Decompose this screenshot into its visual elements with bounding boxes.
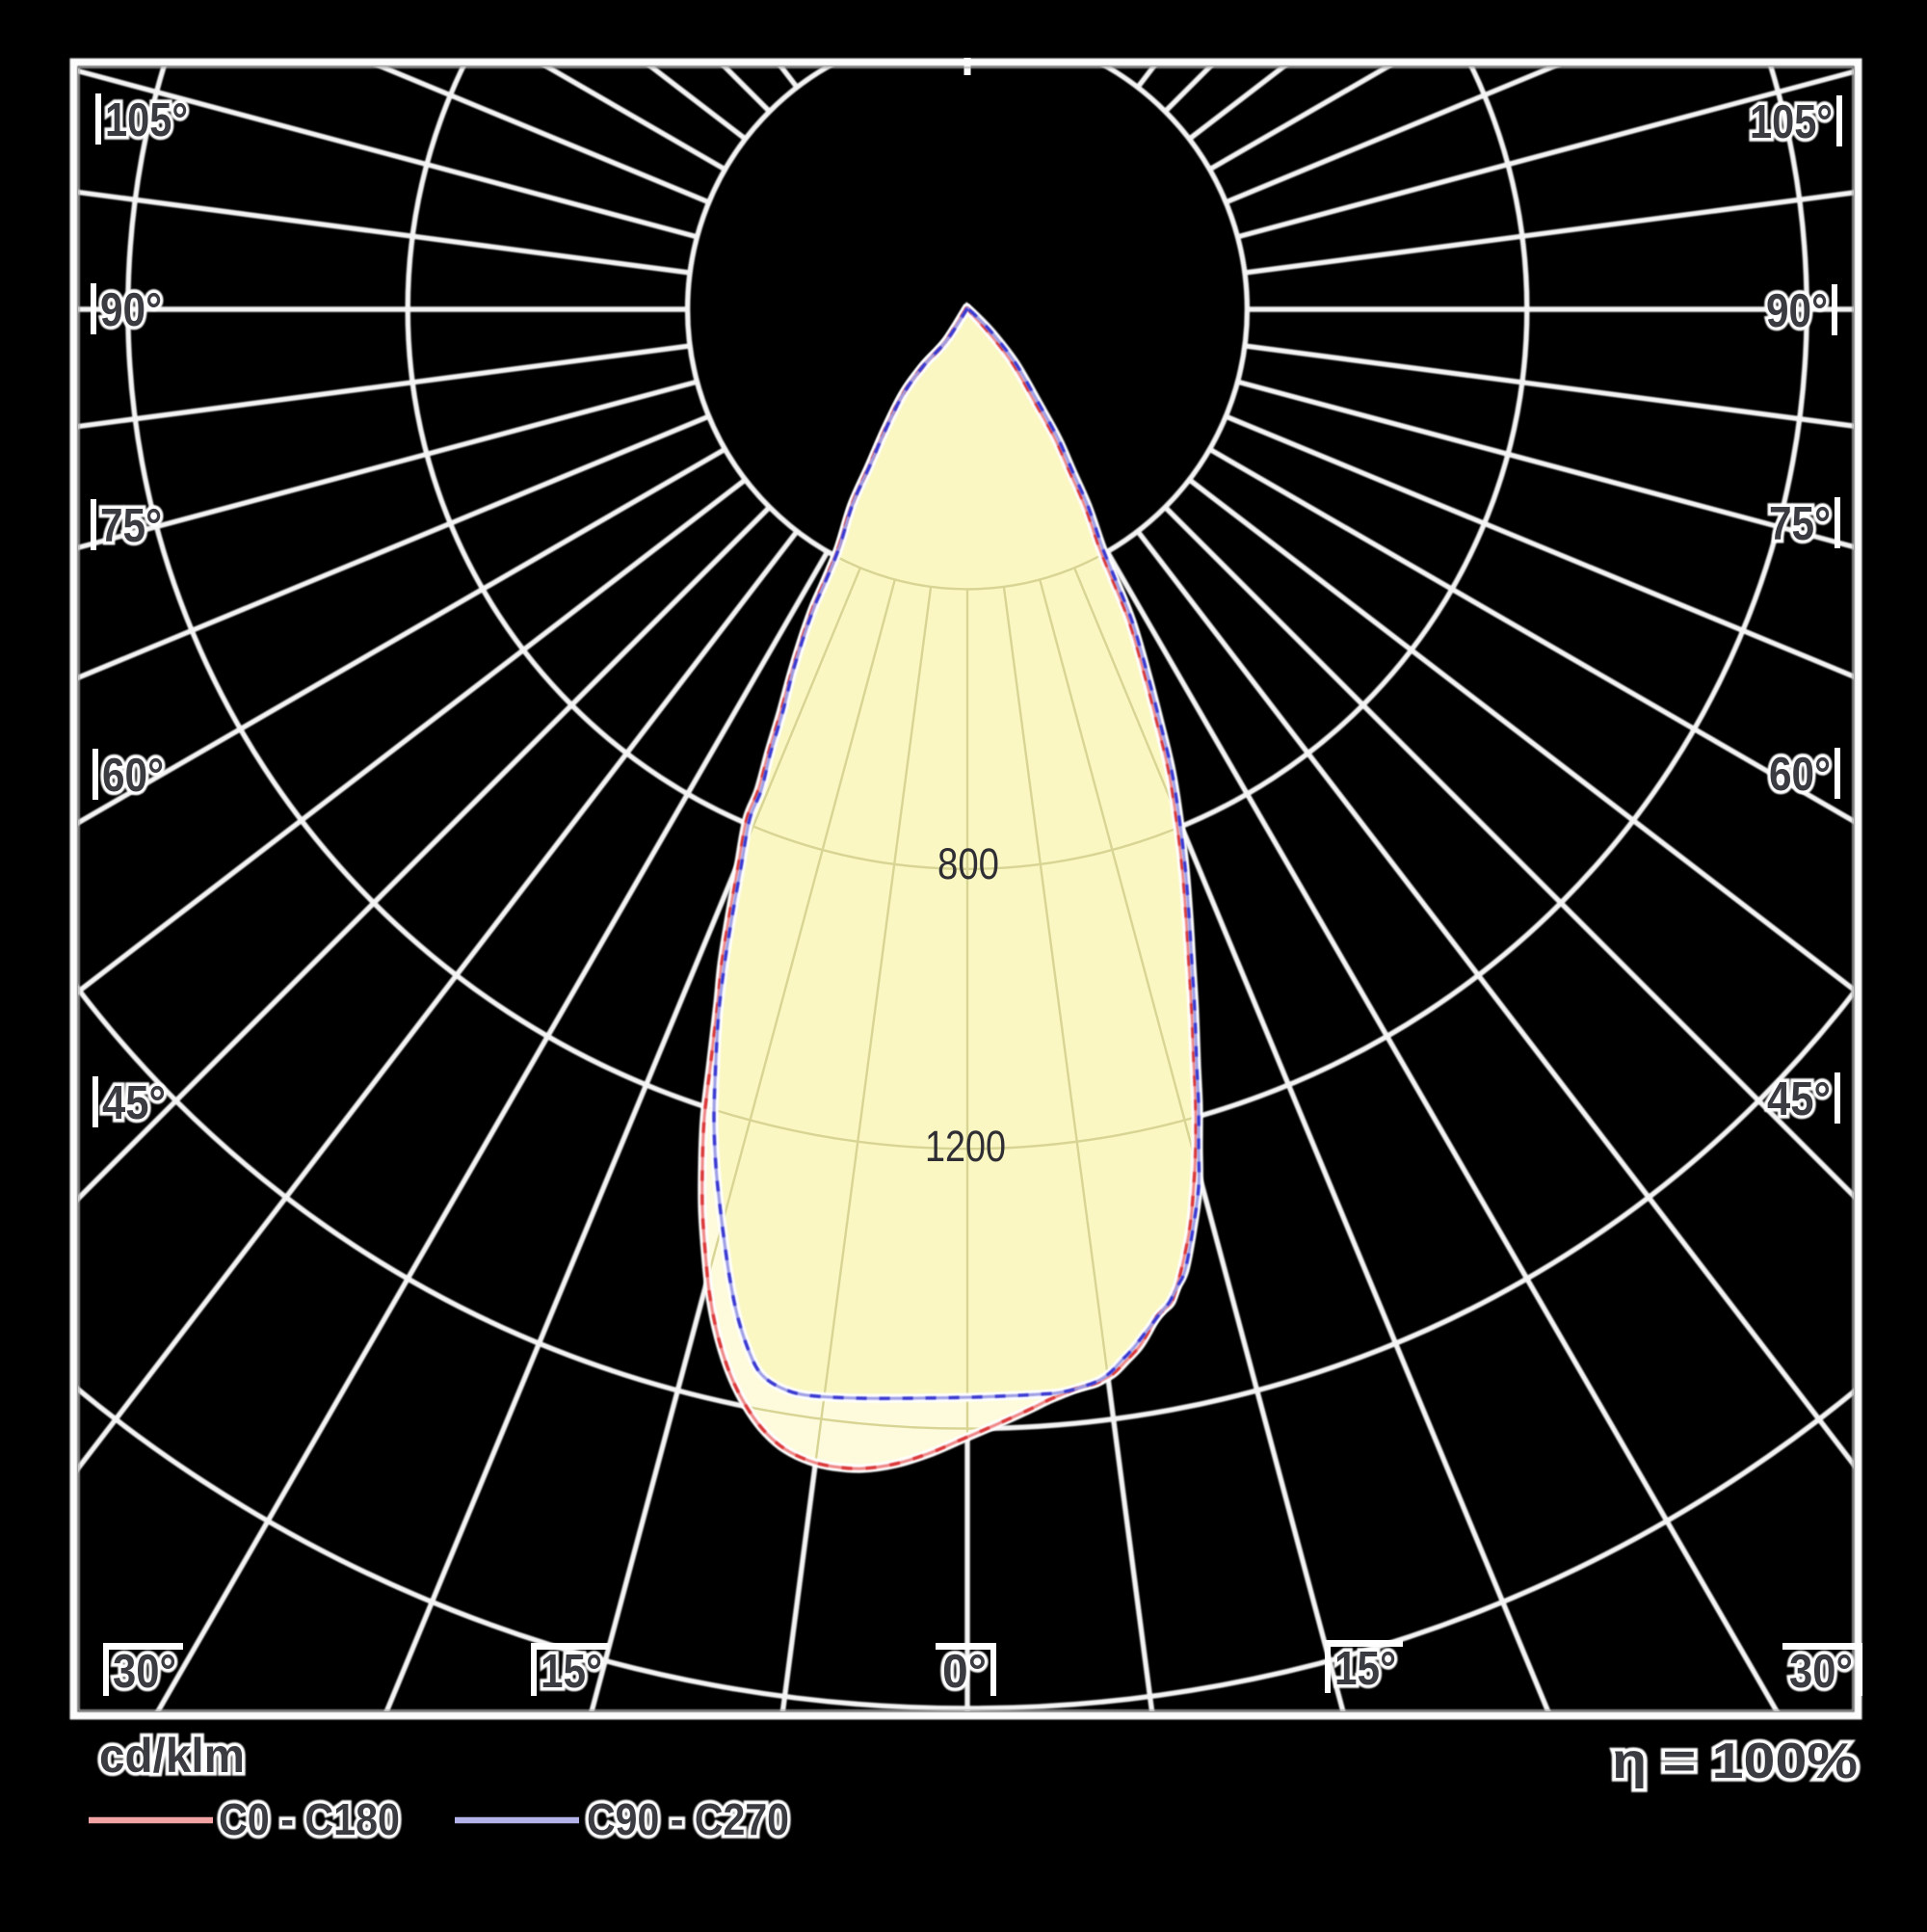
- svg-text:75°: 75°: [100, 500, 162, 552]
- svg-text:1200: 1200: [925, 1122, 1006, 1171]
- svg-text:105°: 105°: [105, 94, 188, 146]
- svg-text:45°: 45°: [1767, 1073, 1831, 1125]
- svg-text:15°: 15°: [1334, 1643, 1396, 1695]
- svg-text:cd/klm: cd/klm: [99, 1729, 245, 1783]
- svg-text:75°: 75°: [1769, 498, 1831, 550]
- svg-text:C0 - C180: C0 - C180: [219, 1794, 400, 1844]
- svg-text:90°: 90°: [100, 284, 162, 336]
- svg-text:800: 800: [937, 839, 999, 888]
- svg-text:60°: 60°: [1769, 749, 1831, 801]
- svg-text:105°: 105°: [1750, 96, 1833, 148]
- svg-text:0°: 0°: [942, 1646, 987, 1698]
- svg-text:30°: 30°: [1789, 1646, 1853, 1698]
- svg-text:30°: 30°: [113, 1646, 176, 1698]
- svg-text:C90 - C270: C90 - C270: [587, 1794, 789, 1844]
- svg-text:90°: 90°: [1766, 285, 1828, 337]
- svg-text:η = 100%: η = 100%: [1612, 1734, 1858, 1789]
- svg-text:15°: 15°: [541, 1646, 602, 1698]
- svg-text:60°: 60°: [102, 750, 164, 802]
- svg-text:45°: 45°: [102, 1077, 166, 1129]
